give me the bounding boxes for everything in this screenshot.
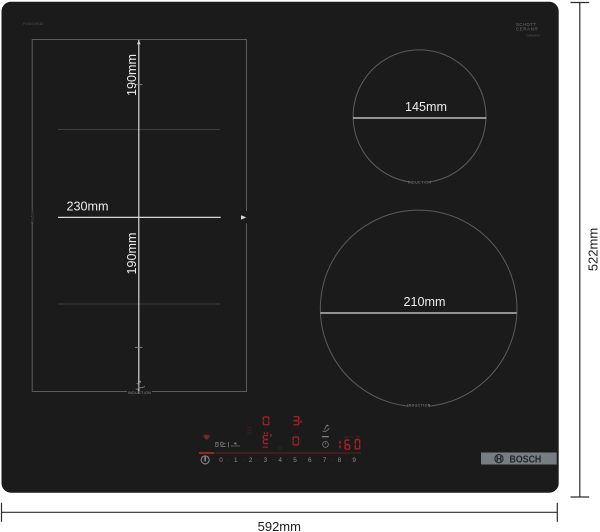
svg-text:PVS611HB1E: PVS611HB1E — [23, 22, 44, 26]
svg-text:flexZone: flexZone — [30, 210, 34, 224]
svg-text:145mm: 145mm — [405, 100, 447, 114]
svg-text:·: · — [316, 457, 318, 462]
svg-text:min s: min s — [344, 435, 353, 439]
svg-text:9: 9 — [352, 457, 356, 464]
svg-text:·: · — [272, 457, 274, 462]
svg-text:0: 0 — [219, 457, 223, 464]
svg-text:592mm: 592mm — [258, 519, 301, 532]
svg-text:·: · — [287, 457, 289, 462]
svg-text:7: 7 — [323, 457, 327, 464]
svg-text:6: 6 — [308, 457, 312, 464]
svg-text:·: · — [331, 457, 333, 462]
svg-text:·: · — [228, 457, 230, 462]
svg-text:CERAN®: CERAN® — [516, 26, 539, 31]
svg-text:s: s — [300, 420, 303, 425]
svg-text:210mm: 210mm — [404, 295, 446, 309]
svg-text:☆: ☆ — [277, 444, 283, 452]
svg-text:INDUCTION: INDUCTION — [407, 403, 431, 407]
svg-text:INDUCTION: INDUCTION — [128, 391, 152, 395]
svg-text:190mm: 190mm — [125, 54, 139, 96]
svg-text:·: · — [302, 457, 304, 462]
svg-text:·: · — [257, 457, 259, 462]
svg-text:522mm: 522mm — [586, 228, 600, 271]
svg-text:8: 8 — [338, 457, 342, 464]
svg-text:GERMANY: GERMANY — [527, 34, 541, 37]
svg-text:190mm: 190mm — [125, 233, 139, 275]
svg-text:BOSCH: BOSCH — [510, 454, 542, 465]
svg-text:·: · — [346, 457, 348, 462]
svg-text:4: 4 — [278, 457, 282, 464]
svg-text:°C: °C — [356, 435, 360, 439]
svg-text:1: 1 — [234, 457, 238, 464]
svg-text:2: 2 — [249, 457, 253, 464]
svg-text:3: 3 — [264, 457, 268, 464]
svg-text:230mm: 230mm — [67, 200, 109, 214]
svg-text:BOOST: BOOST — [231, 445, 241, 448]
svg-text:·: · — [242, 457, 244, 462]
svg-text:5: 5 — [293, 457, 297, 464]
svg-text:INDUCTION: INDUCTION — [408, 181, 432, 185]
